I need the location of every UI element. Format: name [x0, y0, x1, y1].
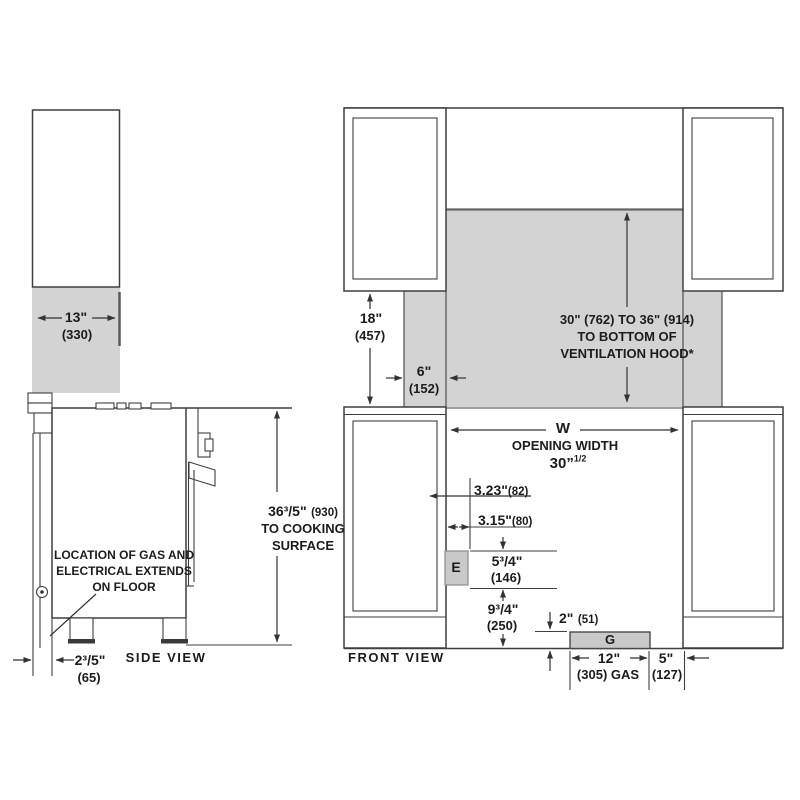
dim-975-value: 9³/4" — [488, 601, 519, 617]
base-cabinet-left-door — [353, 421, 437, 611]
dim-12-value: 12" — [598, 650, 620, 666]
dim-18-mm: (457) — [355, 329, 385, 344]
hood-note-line-2: TO BOTTOM OF — [577, 330, 676, 345]
burner-grate-1 — [96, 403, 114, 409]
dim-36-note-2: SURFACE — [272, 539, 334, 554]
gas-box-label: G — [605, 633, 615, 648]
installation-diagram: 13" (330) 36³/5" (930) TO COOKING SURFAC… — [0, 0, 800, 800]
opening-width-fraction: 1/2 — [574, 454, 587, 464]
hood-note-line-1: 30" (762) TO 36" (914) — [560, 313, 694, 328]
burner-grate-3 — [129, 403, 141, 409]
opening-width-number: 30” — [550, 455, 574, 472]
backguard-lower — [34, 413, 52, 433]
dim-2-35-mm: (65) — [77, 671, 100, 686]
dim-18-value: 18" — [360, 310, 382, 326]
front-view-caption: FRONT VIEW — [348, 651, 445, 666]
dim-323-value: 3.23"(82) — [474, 482, 528, 500]
dim-315-in: 3.15" — [478, 512, 512, 528]
dim-5-value: 5" — [659, 650, 673, 666]
dim-575-mm: (146) — [491, 571, 521, 586]
dim-315-value: 3.15"(80) — [478, 512, 532, 530]
backguard-top — [28, 393, 52, 403]
dim-36-in: 36³/5" — [268, 503, 307, 519]
opening-width-value: 30”1/2 — [550, 455, 587, 473]
gas-inlet-icon-dot — [40, 590, 44, 594]
hood-note-line-3: VENTILATION HOOD* — [560, 347, 693, 362]
gas-note-line-1: LOCATION OF GAS AND — [54, 549, 194, 563]
opening-width-label: OPENING WIDTH — [512, 439, 618, 454]
electrical-box-label: E — [451, 559, 460, 575]
dim-12-mm: (305) GAS — [577, 668, 639, 683]
dim-2in-value: 2" (51) — [559, 610, 598, 628]
upper-cabinet-left-door — [353, 118, 437, 279]
backguard-mid — [28, 403, 52, 413]
range-foot-left — [70, 618, 93, 640]
dim-2in-in: 2" — [559, 610, 573, 626]
dim-5-mm: (127) — [652, 668, 682, 683]
opening-width-symbol: W — [556, 420, 570, 437]
dim-6-mm: (152) — [409, 382, 439, 397]
hood-wall-shading — [446, 209, 683, 291]
door-handle — [189, 462, 215, 486]
side-tall-cabinet — [33, 110, 120, 287]
dim-575-value: 5³/4" — [492, 553, 523, 569]
burner-grate-4 — [151, 403, 171, 409]
dim-975-mm: (250) — [487, 619, 517, 634]
dim-6-value: 6" — [417, 363, 431, 379]
burner-grate-2 — [117, 403, 126, 409]
upper-cabinet-right-door — [692, 118, 773, 279]
dim-36-note-1: TO COOKING — [261, 522, 345, 537]
range-foot-right-cap — [161, 639, 188, 644]
dim-36-mm: (930) — [311, 507, 338, 519]
base-cabinet-right-door — [692, 421, 774, 611]
dim-2-35-value: 2³/5" — [75, 652, 106, 668]
dim-315-mm: (80) — [512, 516, 532, 528]
range-foot-right — [163, 618, 186, 640]
dim-323-in: 3.23" — [474, 482, 508, 498]
dim-13-mm: (330) — [62, 328, 92, 343]
range-foot-left-cap — [68, 639, 95, 644]
dim-2in-mm: (51) — [578, 614, 598, 626]
dim-323-mm: (82) — [508, 486, 528, 498]
side-view-caption: SIDE VIEW — [126, 651, 207, 666]
dim-36-value: 36³/5" (930) — [268, 503, 338, 521]
control-knob-cap — [205, 439, 213, 451]
gas-note-line-3: ON FLOOR — [92, 581, 155, 595]
dim-13-value: 13" — [65, 309, 87, 325]
gas-note-line-2: ELECTRICAL EXTENDS — [56, 565, 192, 579]
